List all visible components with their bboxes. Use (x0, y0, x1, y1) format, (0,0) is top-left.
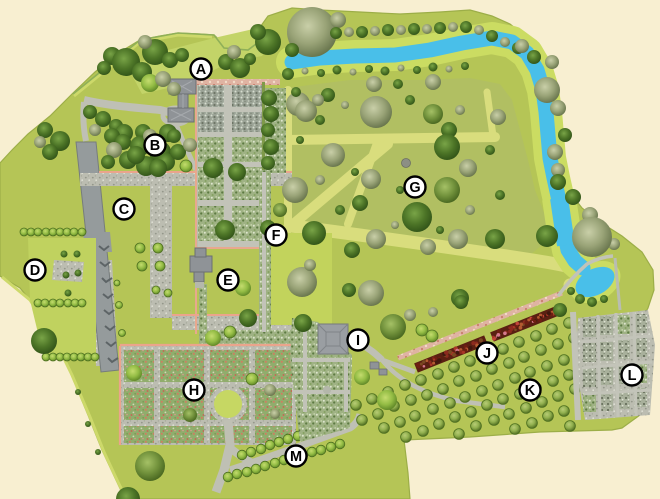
svg-text:B: B (150, 138, 160, 154)
svg-text:A: A (196, 62, 207, 78)
svg-text:M: M (290, 449, 302, 465)
svg-text:E: E (223, 273, 233, 289)
svg-text:H: H (189, 383, 199, 399)
svg-text:K: K (525, 383, 536, 399)
svg-text:D: D (30, 263, 40, 279)
svg-text:J: J (483, 346, 491, 362)
svg-text:C: C (119, 202, 130, 218)
svg-text:F: F (272, 228, 281, 244)
svg-text:I: I (356, 333, 360, 349)
svg-text:G: G (409, 180, 420, 196)
svg-text:L: L (628, 368, 637, 384)
